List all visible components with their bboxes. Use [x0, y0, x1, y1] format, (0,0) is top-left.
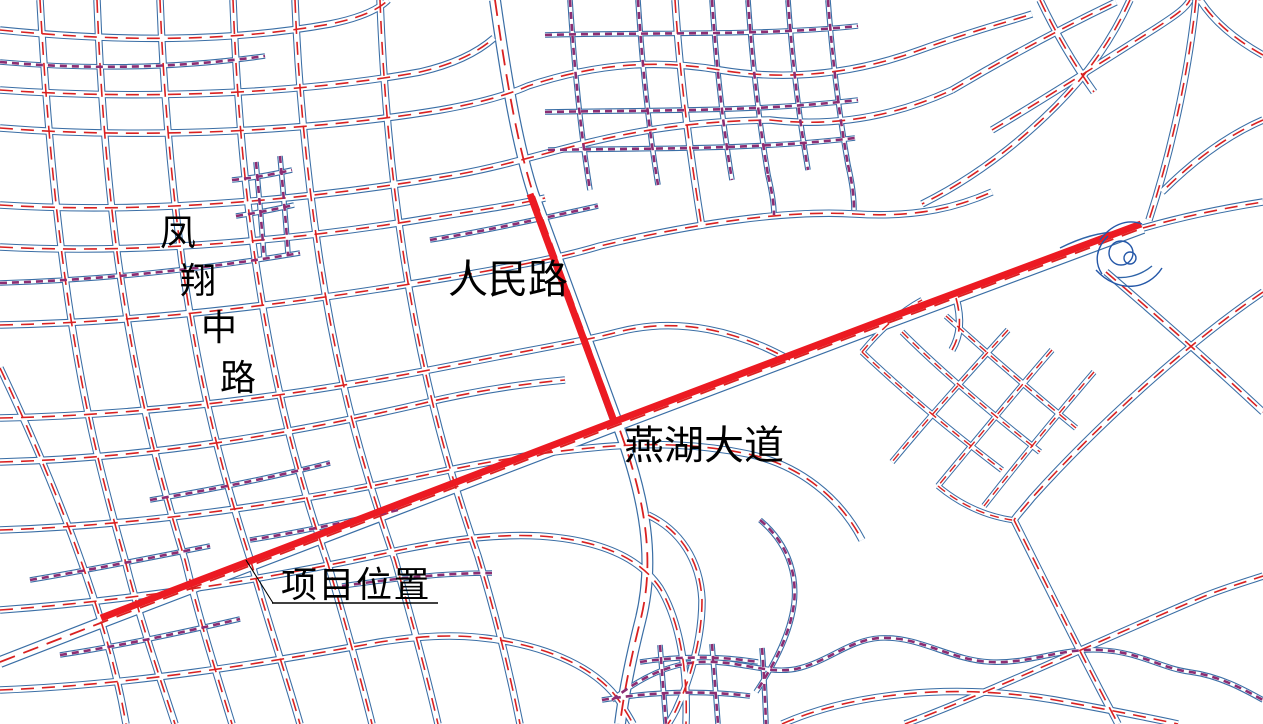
interchange-loop-icon [1109, 241, 1133, 265]
label-fengxiang-char-3: 中 [201, 308, 237, 348]
road-path [952, 2, 1116, 90]
road-path [1149, 0, 1196, 220]
map-canvas: 凤 翔 中 路 人民路 燕湖大道 项目位置 [0, 0, 1263, 724]
cad-road-map: 凤 翔 中 路 人民路 燕湖大道 项目位置 [0, 0, 1263, 724]
road-path [0, 90, 952, 208]
road-path [295, 0, 438, 724]
road-path [0, 90, 952, 208]
road-path [295, 0, 438, 724]
label-fengxiang-char-4: 路 [220, 358, 256, 398]
road-path [1143, 202, 1263, 228]
interchange-loop-icon [1124, 252, 1136, 264]
road-path [0, 368, 126, 724]
road-path [530, 194, 615, 424]
label-renmin-road: 人民路 [448, 257, 568, 302]
road-path [0, 368, 126, 724]
road-path [938, 486, 1012, 520]
label-fengxiang-char-2: 翔 [180, 261, 216, 301]
label-yanhu-avenue: 燕湖大道 [624, 423, 784, 468]
road-path [0, 368, 126, 724]
road-path [295, 0, 438, 724]
label-project-location: 项目位置 [281, 565, 431, 605]
road-casings [0, 0, 1263, 724]
road-path [0, 0, 388, 38]
road-path [922, 0, 1130, 204]
label-fengxiang-char-1: 凤 [160, 213, 196, 253]
road-path [922, 0, 1130, 204]
road-path [0, 90, 952, 208]
road-path [922, 0, 1130, 204]
road-path [946, 316, 1076, 428]
